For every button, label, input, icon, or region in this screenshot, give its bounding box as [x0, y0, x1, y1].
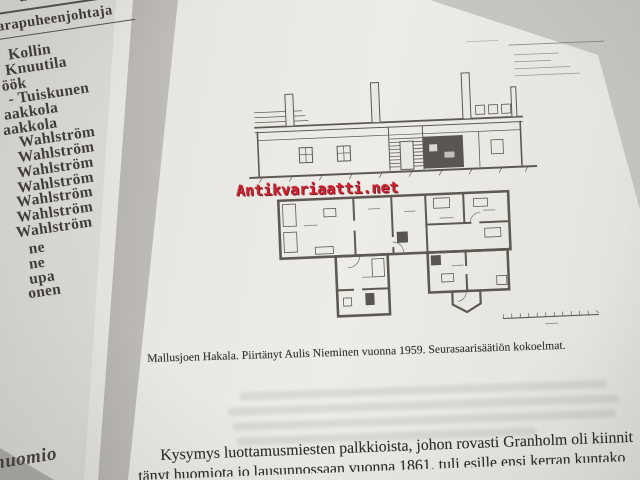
building-elevation [246, 70, 536, 183]
scale-bar [503, 311, 598, 326]
floor-plan [278, 191, 513, 320]
antikvariaatti-watermark: Antikvariaatti.net [236, 178, 399, 199]
title-block [467, 36, 605, 78]
